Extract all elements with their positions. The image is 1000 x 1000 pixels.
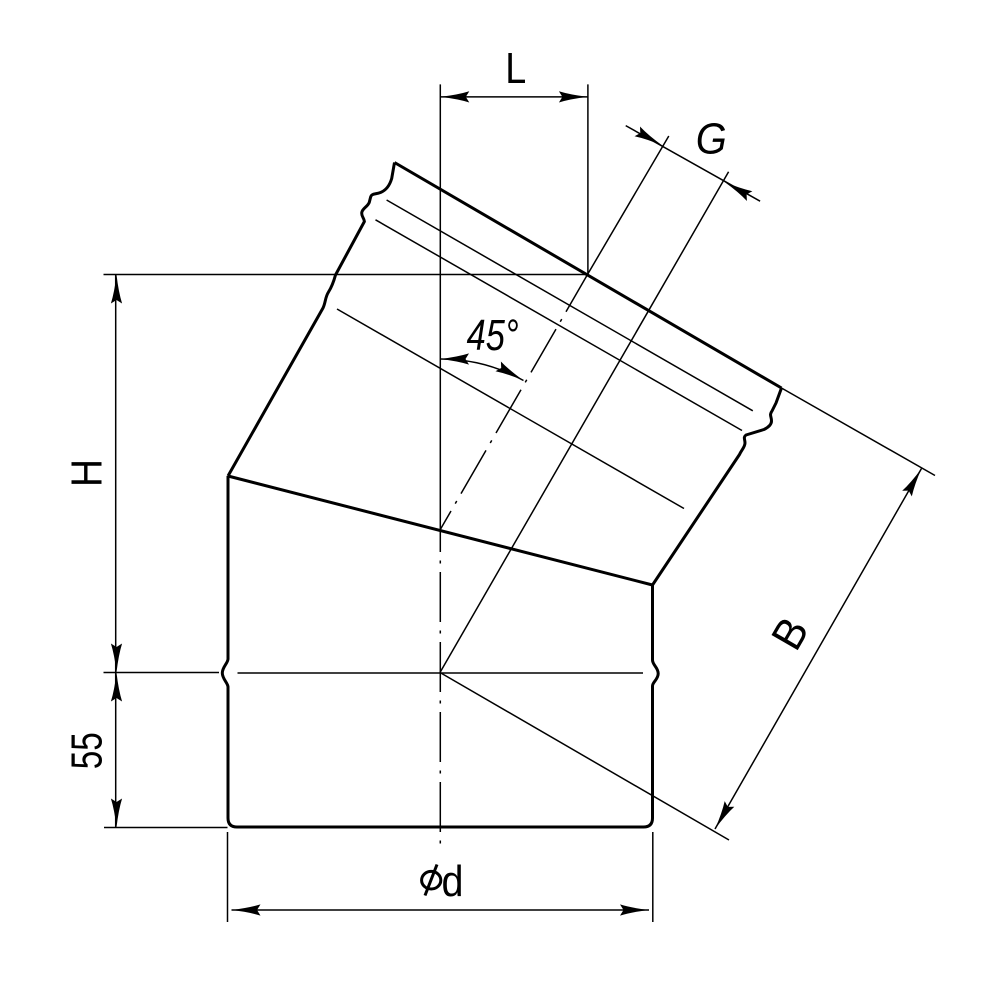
svg-text:B: B [762, 609, 818, 658]
svg-text:L: L [505, 44, 526, 93]
svg-text:d: d [442, 857, 464, 906]
svg-text:55: 55 [63, 732, 112, 769]
svg-text:H: H [62, 459, 111, 487]
svg-text:45°: 45° [467, 311, 519, 360]
svg-text:G: G [696, 115, 727, 164]
